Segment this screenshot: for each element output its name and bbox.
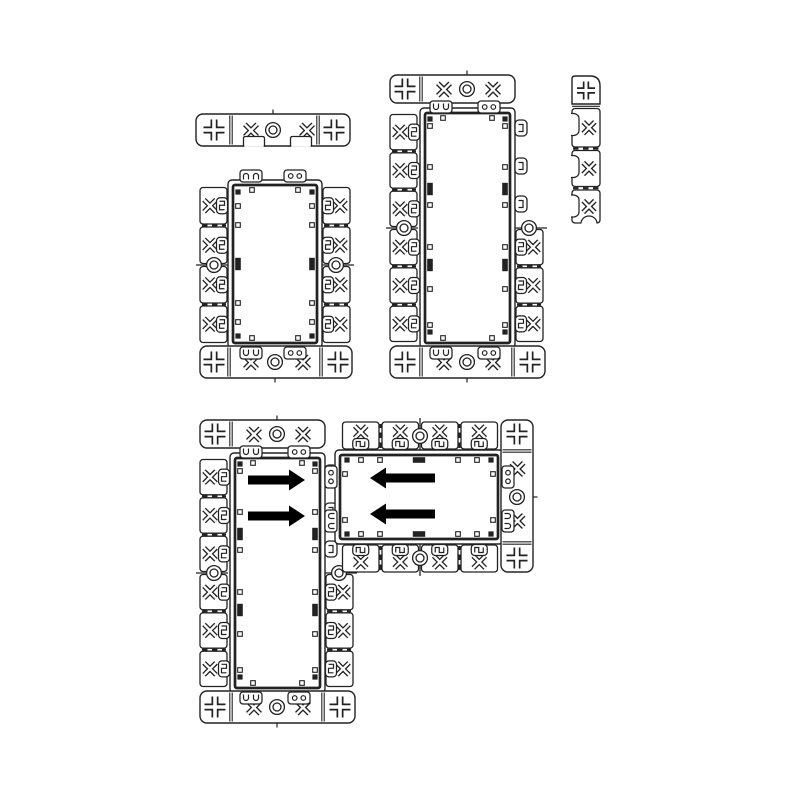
- clip-seat: [313, 632, 318, 637]
- clip-seat: [238, 668, 243, 673]
- clip-seat: [310, 204, 315, 209]
- clip-seat: [251, 681, 256, 686]
- clip-seat: [359, 458, 364, 463]
- side-hook: [515, 196, 527, 212]
- mounting-frames-assembly-diagram: [0, 0, 800, 800]
- clip-seat: [428, 323, 433, 328]
- detached-end-cap-bar: [196, 110, 350, 147]
- mid-clip: [427, 183, 433, 195]
- breakaway-side-strip: [571, 76, 600, 225]
- clip-seat: [475, 532, 480, 537]
- clip-seat: [300, 681, 305, 686]
- clip-seat: [313, 510, 318, 515]
- clip-seat: [313, 590, 318, 595]
- frame-opening: [340, 455, 498, 539]
- clip-seat: [378, 532, 383, 537]
- clip-seat: [343, 472, 348, 477]
- mounting-frame-3-module: [386, 71, 547, 383]
- mid-clip: [235, 258, 241, 270]
- latch-tab: [284, 170, 306, 182]
- clip-seat: [428, 287, 433, 292]
- mid-clip: [502, 259, 508, 271]
- clip-seat: [251, 461, 256, 466]
- clip-seat: [503, 287, 508, 292]
- clip-seat: [250, 336, 255, 341]
- clip-seat: [491, 518, 496, 523]
- frame-opening: [425, 113, 510, 343]
- mid-clip: [309, 258, 315, 270]
- clip-seat: [428, 245, 433, 250]
- clip-seat: [491, 472, 496, 477]
- corner-clip: [309, 189, 314, 194]
- mid-clip: [312, 604, 318, 616]
- clip-seat: [296, 336, 301, 341]
- corner-clip: [502, 329, 507, 334]
- corner-clip: [344, 457, 349, 462]
- corner-clip: [312, 674, 317, 679]
- clip-seat: [490, 116, 495, 121]
- corner-clip: [235, 189, 240, 194]
- mid-clip: [413, 531, 425, 537]
- mid-clip: [413, 457, 425, 463]
- clip-seat: [310, 301, 315, 306]
- clip-seat: [503, 323, 508, 328]
- clip-seat: [359, 532, 364, 537]
- corner-clip: [237, 461, 242, 466]
- latch-tab: [288, 446, 310, 458]
- mid-clip: [502, 183, 508, 195]
- side-hook: [515, 120, 527, 136]
- assembly-horizontal-frame: [325, 418, 538, 576]
- clip-seat: [236, 204, 241, 209]
- latch-tab: [478, 101, 500, 113]
- clip-seat: [456, 458, 461, 463]
- corner-clip: [309, 333, 314, 338]
- latch-tab: [284, 347, 306, 359]
- diagram-page: [0, 0, 800, 800]
- clip-seat: [236, 223, 241, 228]
- clip-seat: [503, 165, 508, 170]
- clip-seat: [428, 124, 433, 129]
- clip-seat: [238, 548, 243, 553]
- clip-seat: [236, 301, 241, 306]
- clip-seat: [441, 336, 446, 341]
- frame-opening: [233, 185, 317, 343]
- clip-seat: [313, 668, 318, 673]
- mid-clip: [427, 259, 433, 271]
- mid-clip: [237, 604, 243, 616]
- clip-seat: [238, 590, 243, 595]
- clip-seat: [503, 203, 508, 208]
- clip-seat: [310, 223, 315, 228]
- assembly-vertical-frame: [196, 416, 357, 728]
- corner-clip: [427, 116, 432, 121]
- latch-tab: [288, 692, 310, 704]
- mid-clip: [237, 528, 243, 540]
- clip-seat: [475, 458, 480, 463]
- clip-seat: [503, 124, 508, 129]
- corner-clip: [312, 461, 317, 466]
- clip-seat: [296, 188, 301, 193]
- corner-clip: [502, 116, 507, 121]
- clip-seat: [313, 548, 318, 553]
- clip-seat: [300, 461, 305, 466]
- clip-seat: [456, 532, 461, 537]
- latch-tab: [325, 466, 337, 488]
- clip-seat: [238, 510, 243, 515]
- corner-clip: [237, 674, 242, 679]
- clip-seat: [238, 469, 243, 474]
- clip-seat: [441, 116, 446, 121]
- clip-seat: [236, 320, 241, 325]
- clip-seat: [250, 188, 255, 193]
- clip-seat: [428, 165, 433, 170]
- clip-seat: [310, 320, 315, 325]
- corner-clip: [427, 329, 432, 334]
- side-hook: [515, 158, 527, 174]
- corner-clip: [344, 531, 349, 536]
- clip-seat: [378, 458, 383, 463]
- corner-clip: [235, 333, 240, 338]
- frame-opening: [235, 458, 320, 688]
- latch-tab: [478, 347, 500, 359]
- clip-seat: [428, 203, 433, 208]
- mounting-frame-2-module: [196, 170, 354, 383]
- clip-seat: [490, 336, 495, 341]
- clip-seat: [503, 245, 508, 250]
- latch-tab: [502, 466, 514, 488]
- clip-seat: [313, 469, 318, 474]
- side-hook: [325, 541, 337, 557]
- clip-seat: [343, 518, 348, 523]
- corner-clip: [488, 457, 493, 462]
- clip-seat: [238, 632, 243, 637]
- mid-clip: [312, 528, 318, 540]
- corner-clip: [488, 531, 493, 536]
